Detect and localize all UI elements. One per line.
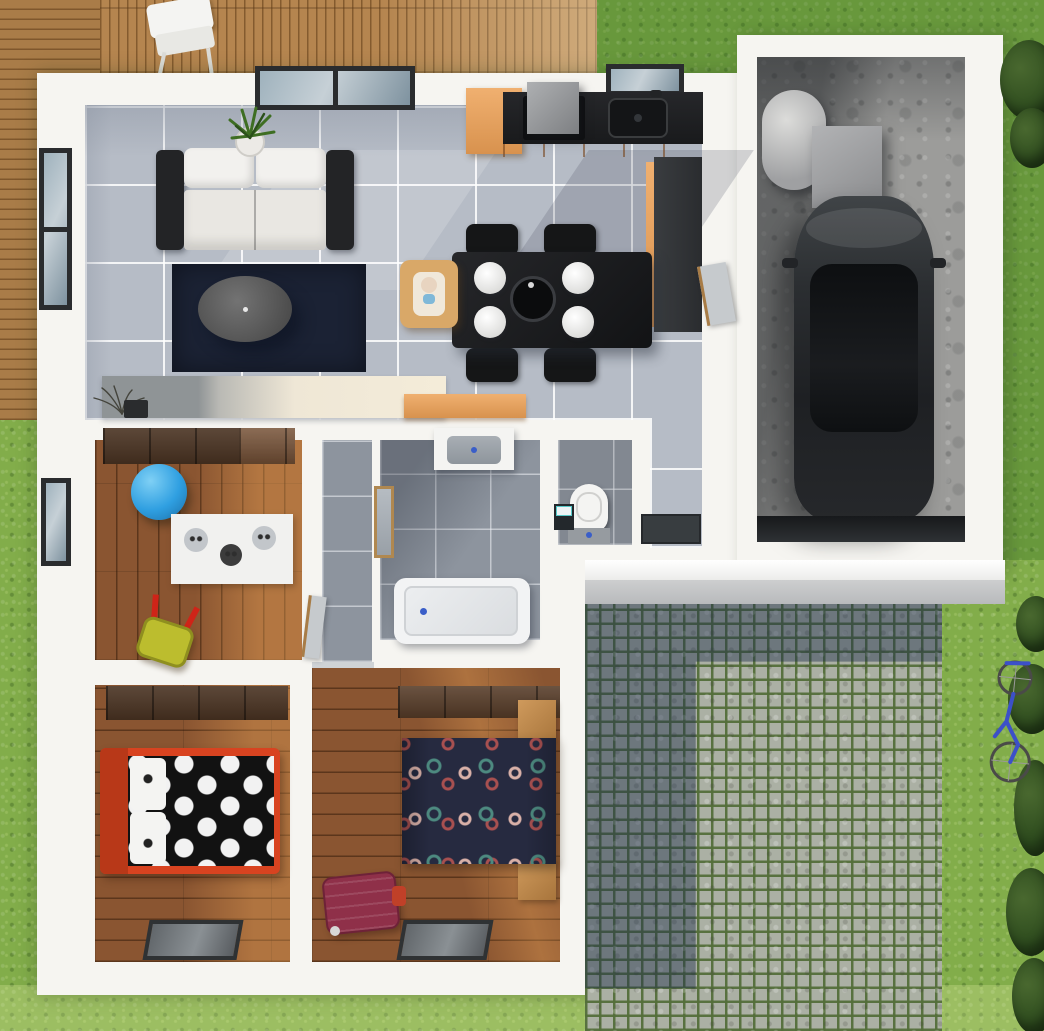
window-bedroom2 (142, 920, 243, 960)
garage-door-band (757, 516, 965, 542)
car-hood-glint (806, 208, 922, 248)
rug-animal (220, 544, 242, 566)
window-living-left (39, 148, 72, 310)
suitcase-handle (392, 886, 406, 906)
rug-animal (184, 528, 208, 552)
baby (421, 277, 437, 293)
toilet-button (586, 532, 592, 538)
potted-plant (222, 102, 278, 160)
plate (474, 306, 506, 338)
floor-plan-render (0, 0, 1044, 1031)
sofa-armrest-right (326, 150, 354, 250)
car-mirror (930, 258, 946, 268)
range-hood (527, 82, 579, 134)
wc-washbasin-top (556, 506, 572, 516)
hallway-floor (322, 440, 372, 662)
window-bedroom1-left (41, 478, 71, 566)
bedroom2-wardrobe (106, 686, 288, 720)
media-sideboard (102, 376, 446, 418)
basin-drain (471, 447, 477, 453)
bed2-headboard (100, 748, 128, 874)
tv-box (124, 400, 148, 418)
sofa-armrest-left (156, 150, 184, 250)
bed2-pillow (130, 758, 166, 810)
toilet-seat-line (576, 492, 602, 522)
sofa (156, 148, 354, 252)
side-counter (654, 157, 702, 332)
car-mirror (782, 258, 798, 268)
doormat (641, 514, 701, 544)
deck-sun-wash (380, 0, 597, 73)
nightstand (518, 858, 556, 900)
bed2-pillow (130, 812, 166, 864)
bowl-glint (528, 282, 534, 288)
sink-faucet (650, 90, 662, 97)
car-windshield-roof (810, 264, 918, 432)
coffee-table-detail (243, 307, 248, 312)
dining-chair (544, 348, 596, 382)
baby-bib (423, 294, 435, 304)
sink-drain (634, 114, 642, 122)
window-mullion (333, 71, 338, 105)
bathroom-mirror (374, 486, 394, 558)
window-living-top (255, 66, 415, 110)
front-step-gray (585, 580, 1005, 604)
bedroom1-wardrobe (103, 428, 239, 464)
counter-drawer-fronts (503, 144, 703, 157)
window-bedroom3 (396, 920, 493, 960)
plate (562, 262, 594, 294)
wall-shade-left (85, 105, 111, 420)
window-mullion (44, 227, 67, 232)
nightstand (518, 700, 556, 742)
sofa-seam (254, 190, 256, 250)
tub-drain (420, 608, 427, 615)
dining-chair (466, 348, 518, 382)
deck-chair (140, 0, 226, 78)
plate (474, 262, 506, 294)
plate (562, 306, 594, 338)
car (788, 196, 940, 526)
suitcase-wheel (330, 926, 340, 936)
deck-chair-leg (206, 48, 214, 76)
bed3-fold (402, 738, 556, 864)
blue-ball (131, 464, 187, 520)
bedroom1-wardrobe-light (239, 428, 295, 464)
rug-animal (252, 526, 276, 550)
front-step-white (585, 560, 1005, 580)
orange-sideboard (404, 394, 526, 418)
